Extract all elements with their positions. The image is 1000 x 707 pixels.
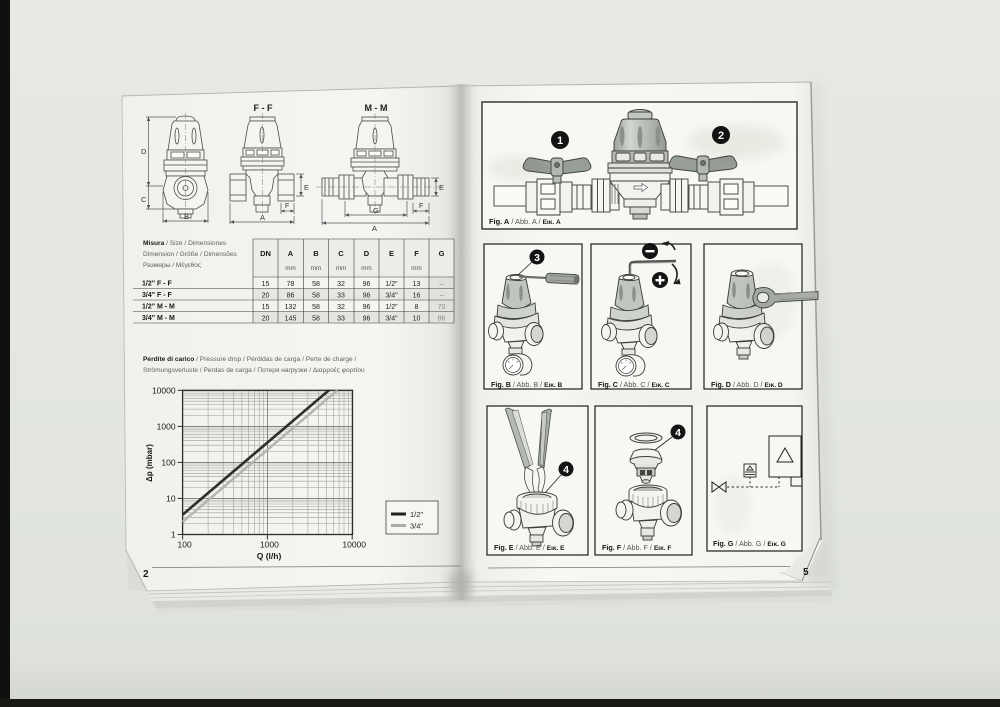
svg-text:16: 16: [413, 293, 421, 300]
svg-text:Fig. C / Abb. C / Εικ. C: Fig. C / Abb. C / Εικ. C: [598, 380, 670, 389]
svg-text:Fig. G / Abb. G / Εικ. G: Fig. G / Abb. G / Εικ. G: [713, 539, 786, 548]
svg-text:15: 15: [262, 281, 270, 288]
svg-text:F: F: [414, 249, 419, 258]
svg-text:1: 1: [171, 530, 176, 540]
svg-text:DN: DN: [260, 249, 271, 258]
svg-text:96: 96: [363, 316, 371, 323]
svg-text:Fig. B / Abb. B / Εικ. B: Fig. B / Abb. B / Εικ. B: [491, 380, 563, 389]
svg-text:C: C: [338, 249, 344, 258]
svg-text:1/2": 1/2": [385, 304, 398, 311]
svg-text:58: 58: [312, 293, 320, 300]
svg-text:F: F: [419, 203, 423, 210]
svg-text:Fig. E / Abb. E / Εικ. E: Fig. E / Abb. E / Εικ. E: [494, 543, 565, 552]
svg-text:B: B: [184, 212, 189, 221]
svg-text:B: B: [313, 249, 319, 258]
svg-text:Strömungsverluste / Perdas de: Strömungsverluste / Perdas de carga / По…: [143, 366, 365, 374]
svg-text:F - F: F - F: [254, 103, 273, 113]
svg-text:58: 58: [312, 316, 320, 323]
svg-text:G: G: [439, 249, 445, 258]
svg-text:3/4": 3/4": [385, 293, 398, 300]
svg-text:G: G: [373, 206, 379, 215]
svg-text:4: 4: [563, 464, 569, 476]
svg-text:86: 86: [287, 293, 295, 300]
svg-text:1/2" M - M: 1/2" M - M: [142, 304, 175, 311]
svg-text:145: 145: [285, 316, 297, 323]
svg-text:Δp (mbar): Δp (mbar): [145, 444, 154, 482]
svg-text:78: 78: [287, 281, 295, 288]
svg-text:Fig. A / Abb. A / Εικ. A: Fig. A / Abb. A / Εικ. A: [489, 217, 561, 226]
svg-text:3/4" F - F: 3/4" F - F: [142, 292, 172, 299]
svg-text:A: A: [260, 213, 265, 222]
svg-text:10000: 10000: [152, 385, 176, 395]
svg-text:mm: mm: [411, 265, 422, 272]
svg-text:1000: 1000: [260, 540, 279, 550]
svg-text:96: 96: [363, 293, 371, 300]
svg-text:100: 100: [178, 540, 192, 550]
svg-text:mm: mm: [361, 265, 372, 272]
svg-text:Q (l/h): Q (l/h): [257, 551, 282, 561]
svg-text:58: 58: [312, 281, 320, 288]
svg-text:1: 1: [557, 135, 563, 147]
svg-text:A: A: [288, 249, 294, 258]
svg-text:3/4": 3/4": [385, 316, 398, 323]
svg-text:3/4": 3/4": [410, 522, 423, 531]
svg-text:86: 86: [438, 316, 446, 323]
svg-text:D: D: [141, 147, 147, 156]
svg-text:Misura / Size / Dimensiones: Misura / Size / Dimensiones: [143, 240, 227, 247]
svg-text:mm: mm: [311, 265, 322, 272]
svg-text:13: 13: [413, 281, 421, 288]
svg-text:10000: 10000: [342, 540, 366, 550]
svg-text:32: 32: [337, 281, 345, 288]
svg-text:70: 70: [438, 304, 446, 311]
svg-text:Dimension / Größe / Dimensões: Dimension / Größe / Dimensões: [143, 251, 238, 258]
svg-text:3: 3: [534, 252, 540, 264]
svg-text:2: 2: [143, 569, 149, 580]
svg-text:132: 132: [285, 304, 297, 311]
svg-text:32: 32: [337, 304, 345, 311]
svg-text:–: –: [440, 293, 444, 300]
svg-text:–: –: [440, 281, 444, 288]
svg-text:E: E: [389, 249, 394, 258]
svg-text:4: 4: [675, 427, 681, 439]
svg-text:10: 10: [413, 316, 421, 323]
svg-text:Размеры / Μέγεθος: Размеры / Μέγεθος: [143, 261, 201, 269]
svg-text:M - M: M - M: [365, 103, 388, 113]
svg-text:mm: mm: [285, 265, 296, 272]
svg-text:58: 58: [312, 304, 320, 311]
svg-text:Perdite di carico / Pressure d: Perdite di carico / Pressure drop / Pérd…: [143, 356, 356, 363]
svg-text:5: 5: [803, 567, 809, 578]
svg-text:100: 100: [161, 457, 175, 467]
svg-text:mm: mm: [336, 265, 347, 272]
svg-text:8: 8: [415, 304, 419, 311]
svg-text:1/2": 1/2": [410, 510, 423, 519]
svg-text:1000: 1000: [157, 421, 176, 431]
svg-text:3/4" M - M: 3/4" M - M: [142, 315, 175, 322]
svg-text:96: 96: [363, 304, 371, 311]
svg-text:33: 33: [337, 293, 345, 300]
svg-text:F: F: [285, 203, 289, 210]
svg-text:1/2": 1/2": [385, 281, 398, 288]
svg-text:15: 15: [262, 304, 270, 311]
svg-text:D: D: [364, 249, 370, 258]
svg-text:Fig. D / Abb. D / Εικ. D: Fig. D / Abb. D / Εικ. D: [711, 380, 783, 389]
svg-text:20: 20: [262, 293, 270, 300]
svg-text:A: A: [372, 224, 377, 233]
svg-text:20: 20: [262, 316, 270, 323]
svg-text:10: 10: [166, 493, 176, 503]
svg-text:E: E: [439, 183, 444, 192]
svg-text:C: C: [141, 195, 147, 204]
svg-text:1/2" F - F: 1/2" F - F: [142, 281, 172, 288]
svg-text:96: 96: [363, 281, 371, 288]
svg-text:E: E: [304, 183, 309, 192]
svg-text:33: 33: [337, 316, 345, 323]
svg-text:Fig. F / Abb. F / Εικ. F: Fig. F / Abb. F / Εικ. F: [602, 543, 671, 552]
